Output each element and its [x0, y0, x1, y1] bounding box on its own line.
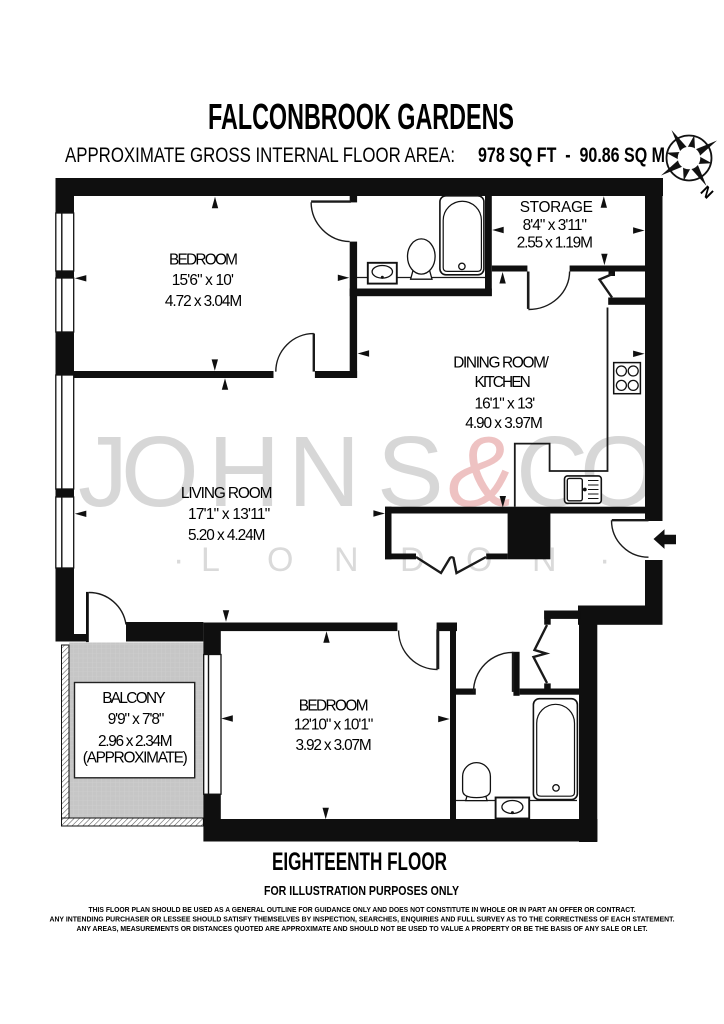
svg-text:2.96 x 2.34M: 2.96 x 2.34M	[98, 733, 173, 750]
svg-text:APPROXIMATE GROSS INTERNAL FLO: APPROXIMATE GROSS INTERNAL FLOOR AREA:	[65, 143, 455, 167]
svg-text:ANY INTENDING PURCHASER OR LES: ANY INTENDING PURCHASER OR LESSEE SHOULD…	[50, 915, 675, 924]
svg-text:N: N	[697, 183, 717, 203]
svg-text:17'1" x 13'11": 17'1" x 13'11"	[188, 506, 270, 523]
svg-text:5.20 x 4.24M: 5.20 x 4.24M	[188, 527, 266, 544]
svg-text:FALCONBROOK GARDENS: FALCONBROOK GARDENS	[208, 96, 514, 137]
svg-text:8'4" x 3'11": 8'4" x 3'11"	[523, 217, 587, 234]
svg-text:BALCONY: BALCONY	[102, 690, 166, 707]
svg-text:4.72 x 3.04M: 4.72 x 3.04M	[165, 293, 242, 310]
svg-text:FOR ILLUSTRATION PURPOSES ONLY: FOR ILLUSTRATION PURPOSES ONLY	[264, 883, 459, 898]
svg-text:EIGHTEENTH FLOOR: EIGHTEENTH FLOOR	[272, 848, 447, 876]
svg-text:DINING ROOM/: DINING ROOM/	[453, 354, 549, 371]
svg-text:·: ·	[599, 541, 610, 579]
svg-text:2.55 x 1.19M: 2.55 x 1.19M	[517, 234, 593, 251]
svg-text:KITCHEN: KITCHEN	[475, 374, 531, 391]
svg-text:12'10" x 10'1": 12'10" x 10'1"	[294, 717, 373, 734]
svg-text:BEDROOM: BEDROOM	[169, 252, 238, 269]
svg-text:978 SQ FT - 90.86 SQ M: 978 SQ FT - 90.86 SQ M	[478, 143, 665, 167]
svg-text:(APPROXIMATE): (APPROXIMATE)	[83, 749, 188, 766]
svg-text:O: O	[267, 541, 293, 579]
svg-text:·: ·	[173, 541, 184, 579]
svg-text:3.92 x 3.07M: 3.92 x 3.07M	[296, 737, 372, 754]
svg-text:16'1" x 13': 16'1" x 13'	[475, 395, 536, 412]
svg-text:15'6" x 10': 15'6" x 10'	[172, 272, 234, 289]
svg-text:THIS FLOOR PLAN SHOULD BE USED: THIS FLOOR PLAN SHOULD BE USED AS A GENE…	[89, 905, 636, 914]
svg-text:LIVING ROOM: LIVING ROOM	[181, 485, 273, 502]
svg-text:L: L	[201, 541, 220, 579]
svg-text:N: N	[334, 541, 359, 579]
svg-text:BEDROOM: BEDROOM	[299, 698, 369, 715]
svg-text:4.90 x 3.97M: 4.90 x 3.97M	[465, 415, 543, 432]
svg-text:STORAGE: STORAGE	[520, 199, 593, 216]
svg-text:9'9" x 7'8": 9'9" x 7'8"	[108, 711, 165, 728]
svg-text:ANY AREAS, MEASUREMENTS OR DIS: ANY AREAS, MEASUREMENTS OR DISTANCES QUO…	[77, 924, 648, 933]
